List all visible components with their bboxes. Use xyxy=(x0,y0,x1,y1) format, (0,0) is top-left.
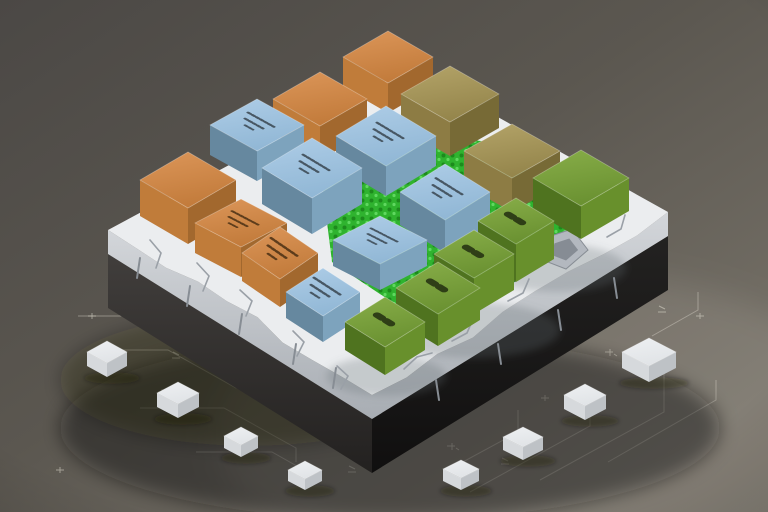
isometric-illustration xyxy=(0,0,768,512)
scene-canvas xyxy=(0,0,768,512)
